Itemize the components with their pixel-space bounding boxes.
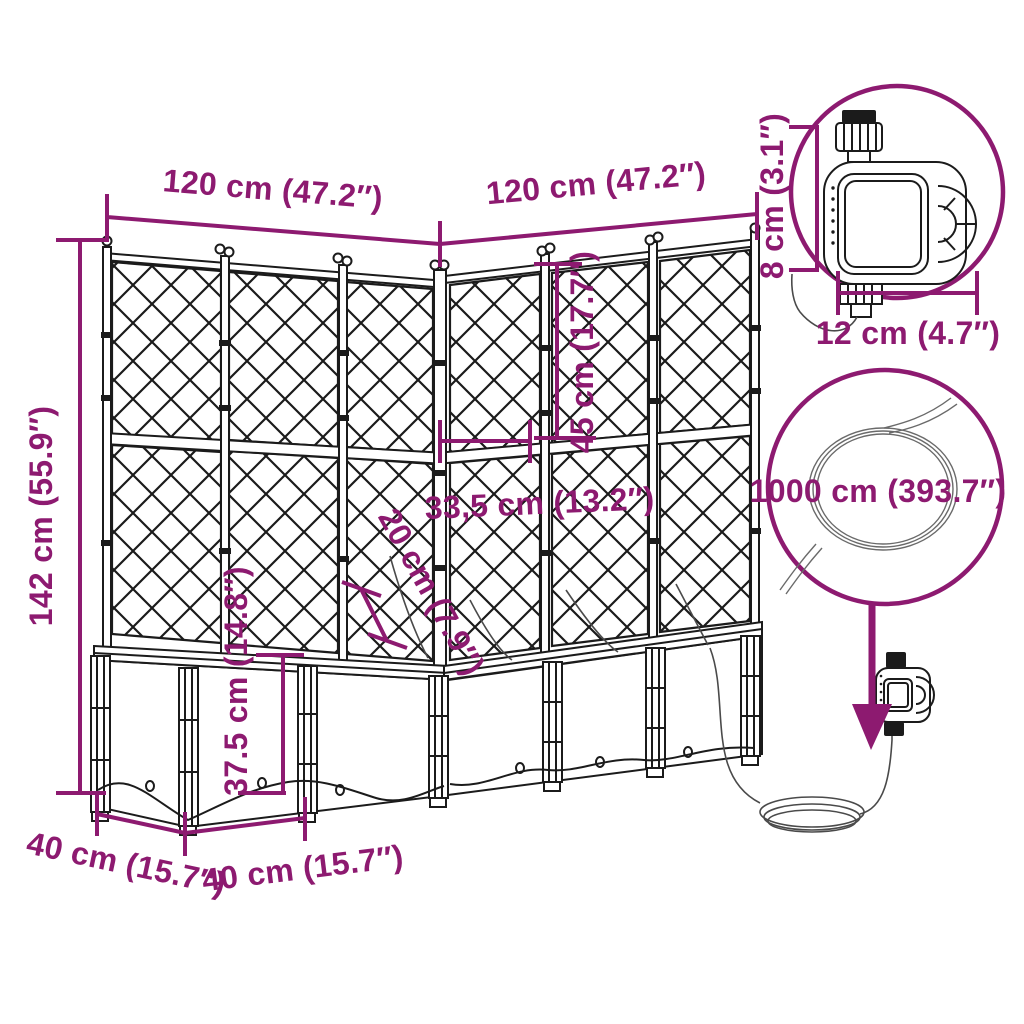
dim-label-hose-length: 1000 cm (393.7″) [750, 473, 1007, 509]
diagram-canvas: 120 cm (47.2″) 120 cm (47.2″) 142 cm (55… [0, 0, 1024, 1024]
dim-label-width-right: 120 cm (47.2″) [484, 155, 707, 212]
dim-label-timer-width: 12 cm (4.7″) [816, 315, 1000, 351]
planter-dimension-diagram: 120 cm (47.2″) 120 cm (47.2″) 142 cm (55… [0, 0, 1024, 1024]
trellis-left-wall [104, 253, 446, 661]
dim-label-total-height: 142 cm (55.9″) [23, 406, 59, 627]
dim-label-module-width: 40 cm (15.7″) [200, 838, 405, 898]
dim-label-base-depth: 40 cm (15.7″) [24, 825, 230, 902]
dim-label-timer-height: 8 cm (3.1″) [754, 113, 790, 279]
water-timer [876, 652, 934, 736]
hose-coil [760, 736, 892, 832]
dim-label-box-height: 37.5 cm (14.8″) [218, 566, 254, 796]
dim-label-width-left: 120 cm (47.2″) [162, 162, 385, 216]
dim-label-trellis-height: 45 cm (17.7″) [564, 251, 600, 453]
